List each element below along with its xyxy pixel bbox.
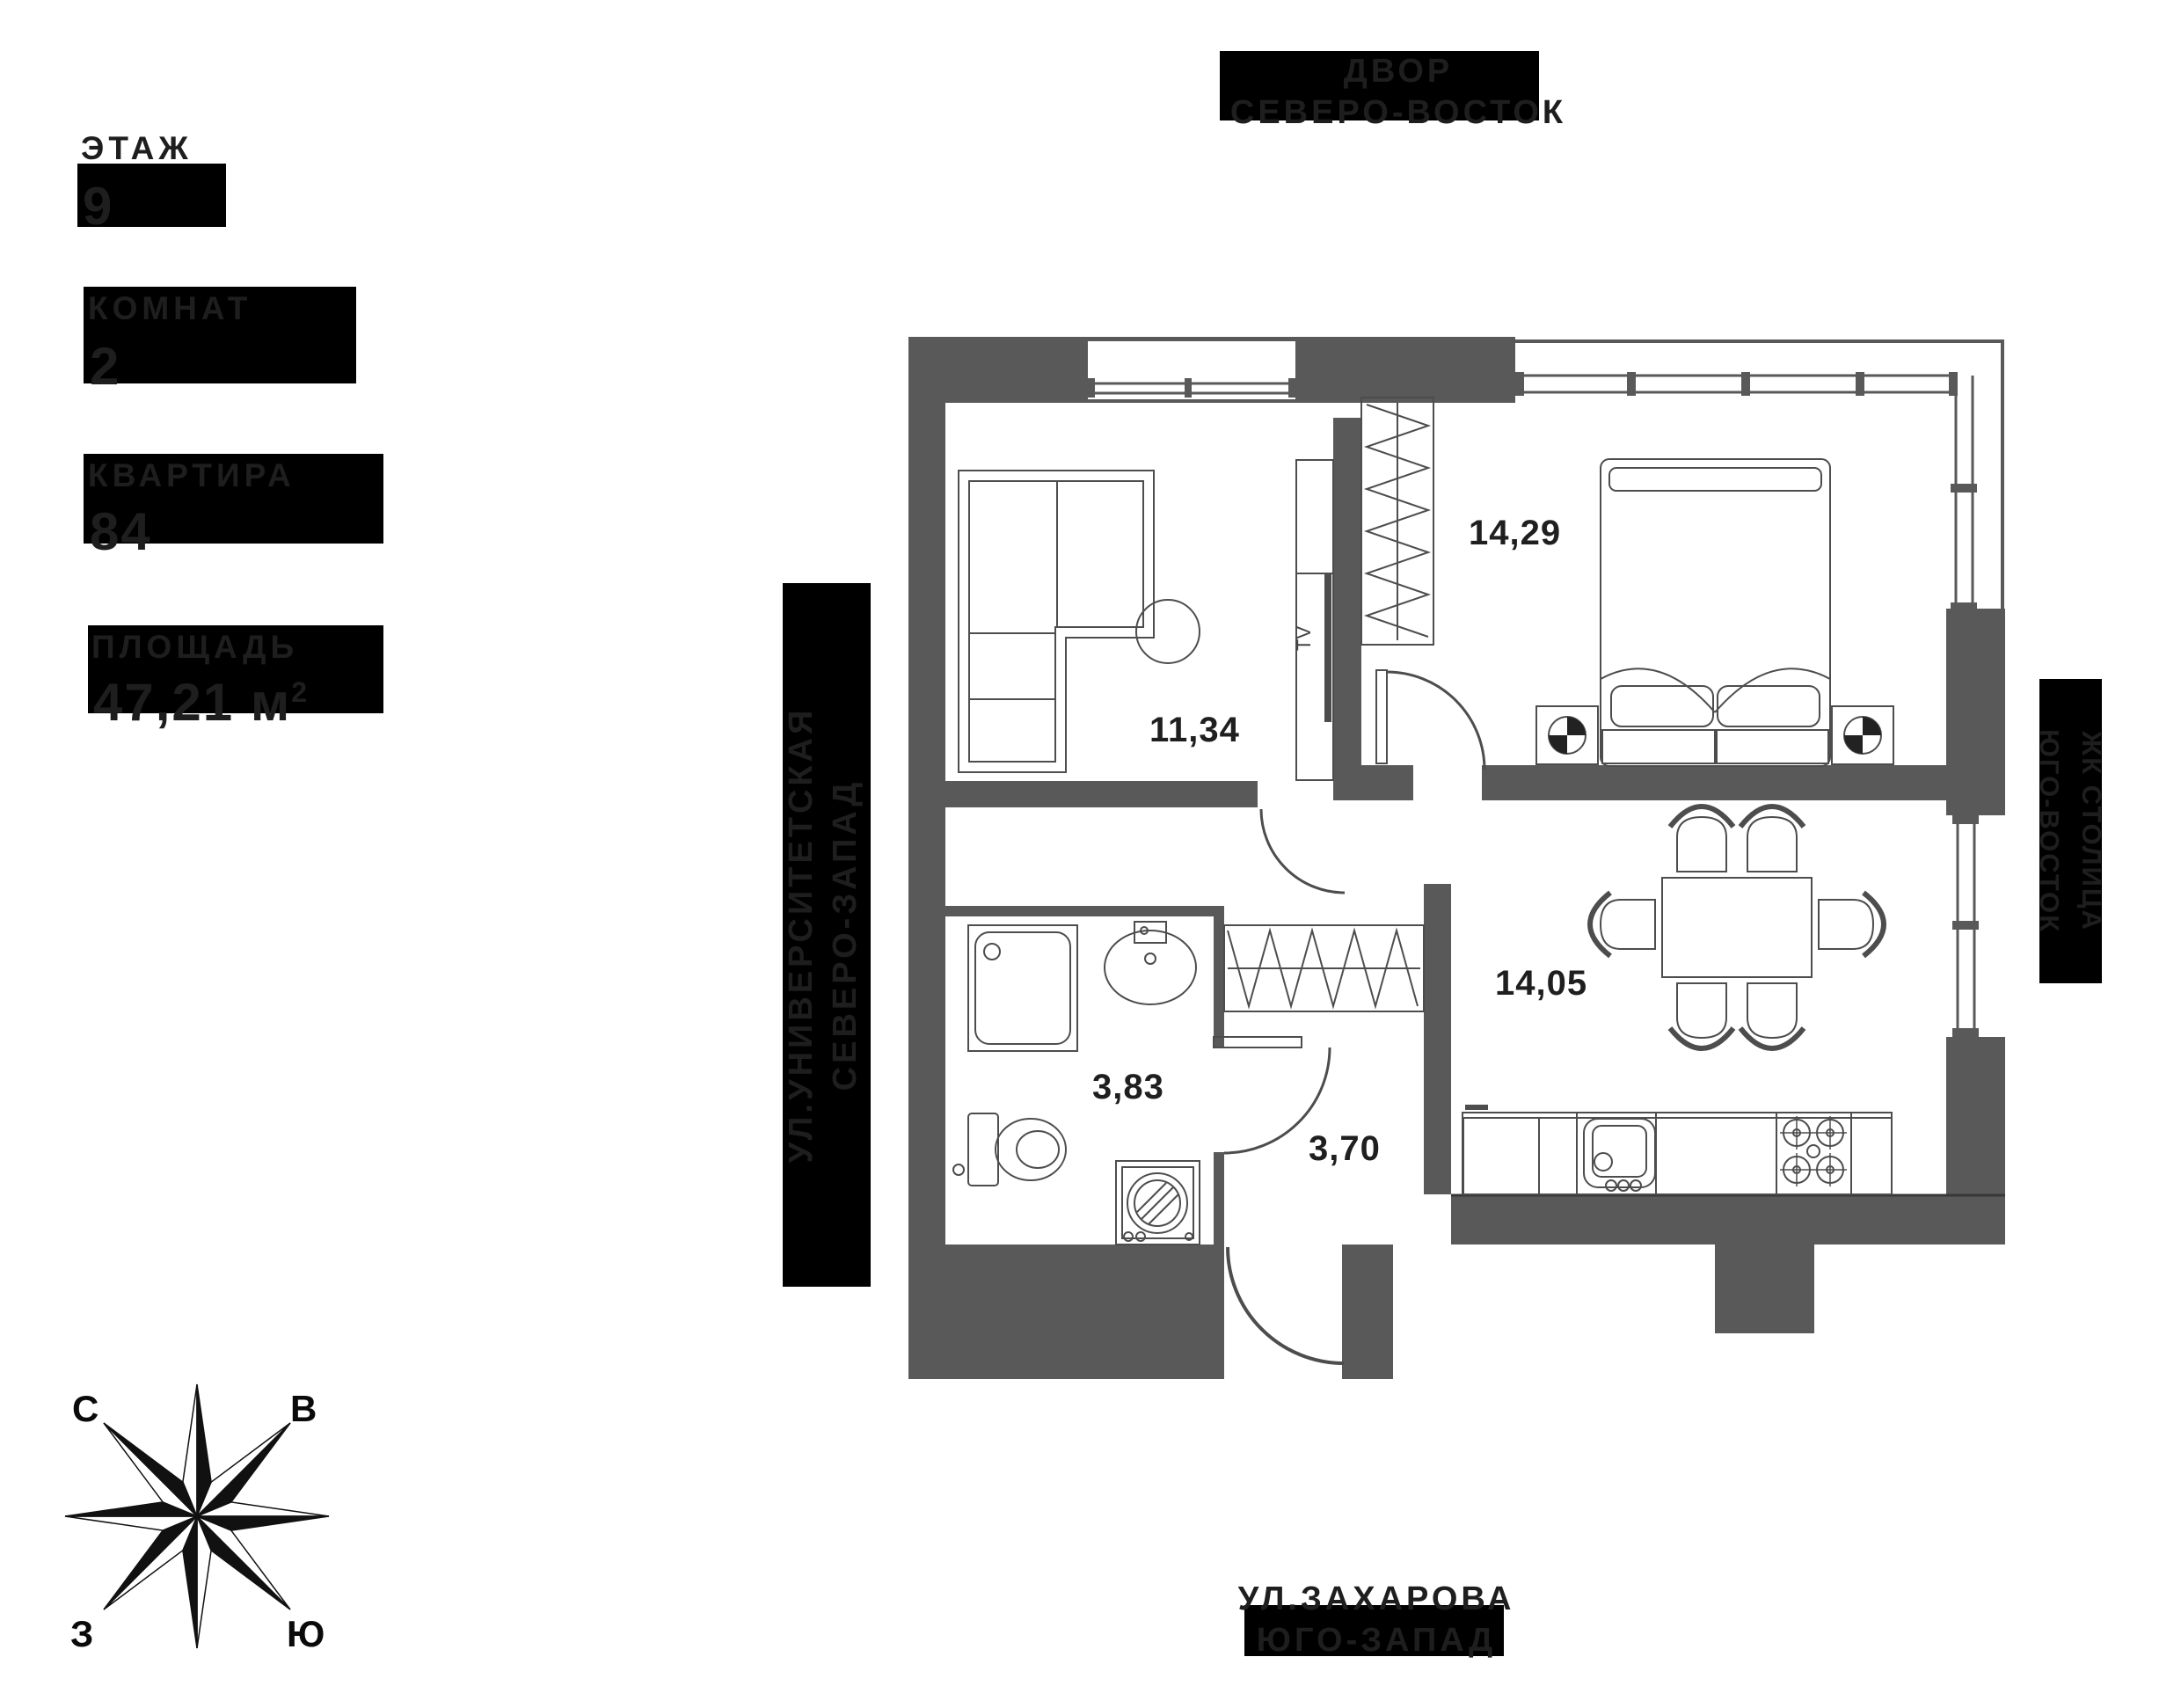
walls bbox=[908, 337, 2005, 1379]
floor-label: ЭТАЖ bbox=[81, 130, 193, 167]
chair bbox=[1677, 817, 1726, 872]
compass-north: С bbox=[72, 1388, 98, 1430]
bathroom-door-leaf bbox=[1214, 1037, 1302, 1047]
stove bbox=[1780, 1116, 1847, 1186]
bed bbox=[1601, 459, 1830, 766]
apartment-value: 84 bbox=[90, 501, 152, 562]
dining-set bbox=[1590, 807, 1884, 1048]
wardrobe-closet bbox=[1361, 398, 1433, 645]
blanket-fold bbox=[1601, 668, 1715, 712]
chair bbox=[1601, 900, 1655, 949]
area-sup: 2 bbox=[291, 676, 309, 708]
dir-top: ДВОР СЕВЕРО-ВОСТОК bbox=[1090, 53, 1706, 132]
area-number: 47,21 м bbox=[93, 673, 291, 732]
bedroom-door-leaf bbox=[1376, 670, 1387, 763]
rooms-value: 2 bbox=[90, 336, 120, 397]
room-area-hallway: 3,70 bbox=[1309, 1129, 1381, 1169]
pillow bbox=[1611, 686, 1713, 726]
chair bbox=[1747, 817, 1797, 872]
bedroom-furniture bbox=[1536, 459, 1893, 766]
dir-left: УЛ.УНИВЕРСИТЕТСКАЯ СЕВЕРО-ЗАПАД bbox=[779, 574, 871, 1296]
hall-coat-rack bbox=[1224, 925, 1424, 1011]
dir-top-line2: СЕВЕРО-ВОСТОК bbox=[1090, 94, 1706, 132]
tv-screen bbox=[1325, 573, 1331, 721]
floor-value: 9 bbox=[83, 176, 113, 237]
toilet-tank bbox=[968, 1113, 998, 1186]
kitchen-counter bbox=[1463, 1105, 1892, 1194]
room-area-bathroom: 3,83 bbox=[1092, 1068, 1164, 1107]
room-area-kitchen: 14,05 bbox=[1495, 964, 1587, 1004]
dir-bottom-line2: ЮГО-ЗАПАД bbox=[1178, 1622, 1574, 1660]
dir-top-line1: ДВОР bbox=[1090, 53, 1706, 91]
area-label: ПЛОЩАДЬ bbox=[91, 629, 298, 666]
toilet-bowl bbox=[996, 1119, 1066, 1180]
bedroom-windows bbox=[1515, 341, 2004, 611]
living-window bbox=[1088, 341, 1295, 399]
pillow bbox=[1718, 686, 1820, 726]
dining-table bbox=[1662, 878, 1812, 977]
compass-west: З bbox=[70, 1613, 93, 1655]
apartment-label: КВАРТИРА bbox=[88, 457, 295, 494]
dir-left-line1: УЛ.УНИВЕРСИТЕТСКАЯ bbox=[779, 574, 823, 1296]
dir-bottom-line1: УЛ.ЗАХАРОВА bbox=[1178, 1580, 1574, 1618]
dir-left-line2: СЕВЕРО-ЗАПАД bbox=[823, 574, 867, 1296]
entrance-door-arc bbox=[1228, 1247, 1344, 1363]
dir-right: ЖК СТОЛИЦА ЮГО-ВОСТОК bbox=[2024, 655, 2112, 1007]
bedroom-door-arc bbox=[1387, 672, 1484, 770]
living-doorway-arc bbox=[1261, 809, 1345, 893]
compass-east: В bbox=[290, 1388, 317, 1430]
living-furniture: TV bbox=[959, 460, 1333, 780]
fridge bbox=[1463, 1118, 1539, 1194]
area-value: 47,21 м2 bbox=[93, 672, 309, 733]
coffee-table bbox=[1136, 600, 1200, 663]
dir-right-line2: ЮГО-ВОСТОК bbox=[2028, 655, 2070, 1007]
dir-bottom: УЛ.ЗАХАРОВА ЮГО-ЗАПАД bbox=[1178, 1580, 1574, 1660]
chair bbox=[1677, 983, 1726, 1038]
floor-plan: TV bbox=[906, 334, 2014, 1390]
chair bbox=[1819, 900, 1873, 949]
page: { "info_panel": { "items": [ {"label": "… bbox=[0, 0, 2181, 1708]
chair bbox=[1747, 983, 1797, 1038]
dir-right-line1: ЖК СТОЛИЦА bbox=[2070, 655, 2112, 1007]
shower bbox=[968, 925, 1077, 1051]
room-area-living: 11,34 bbox=[1149, 711, 1240, 750]
kitchen-window bbox=[1952, 815, 1979, 1037]
compass-south: Ю bbox=[287, 1613, 325, 1655]
bath-sink bbox=[1105, 931, 1196, 1004]
room-area-bedroom: 14,29 bbox=[1469, 514, 1561, 553]
tv-text: TV bbox=[1293, 626, 1315, 651]
rooms-label: КОМНАТ bbox=[88, 290, 252, 327]
